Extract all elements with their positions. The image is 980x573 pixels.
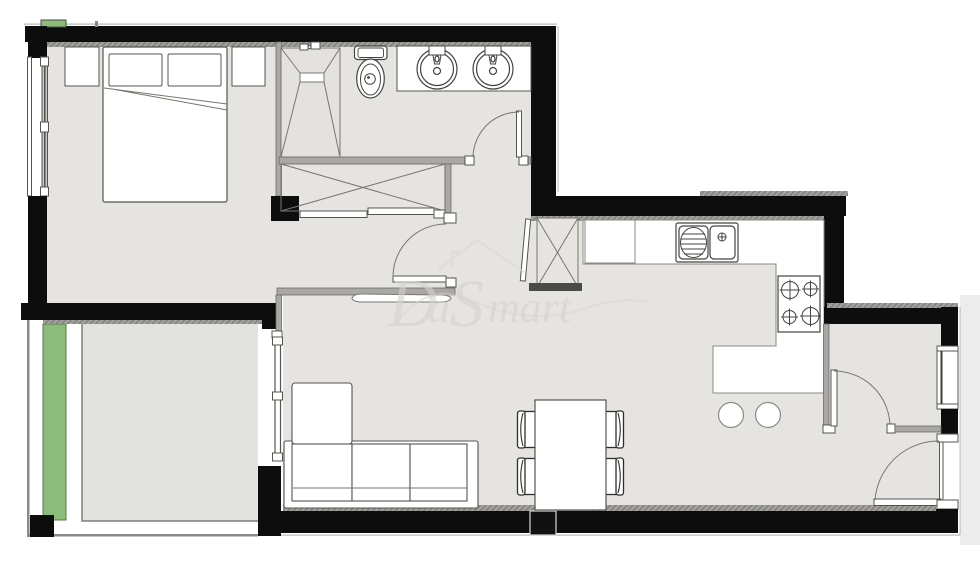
svg-text:mart: mart [488,283,573,332]
svg-text:a: a [428,283,450,332]
svg-text:S: S [450,265,484,341]
